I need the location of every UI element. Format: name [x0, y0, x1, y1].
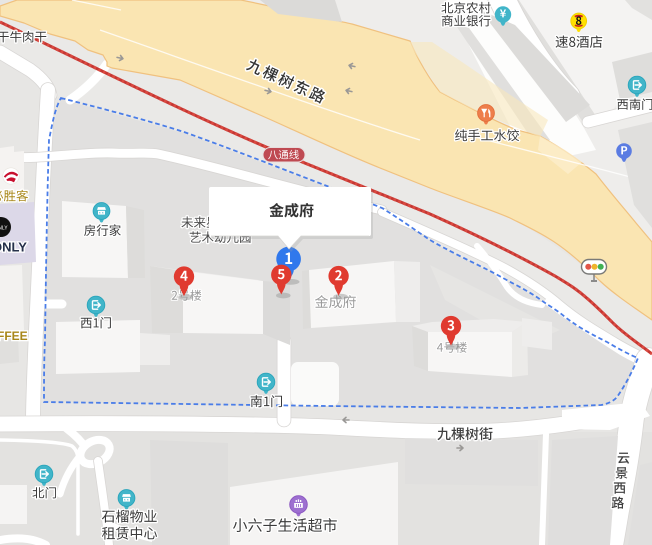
- svg-text:COFFEE: COFFEE: [0, 329, 28, 343]
- svg-text:ONLY: ONLY: [0, 226, 8, 232]
- svg-text:ONLY: ONLY: [0, 240, 27, 255]
